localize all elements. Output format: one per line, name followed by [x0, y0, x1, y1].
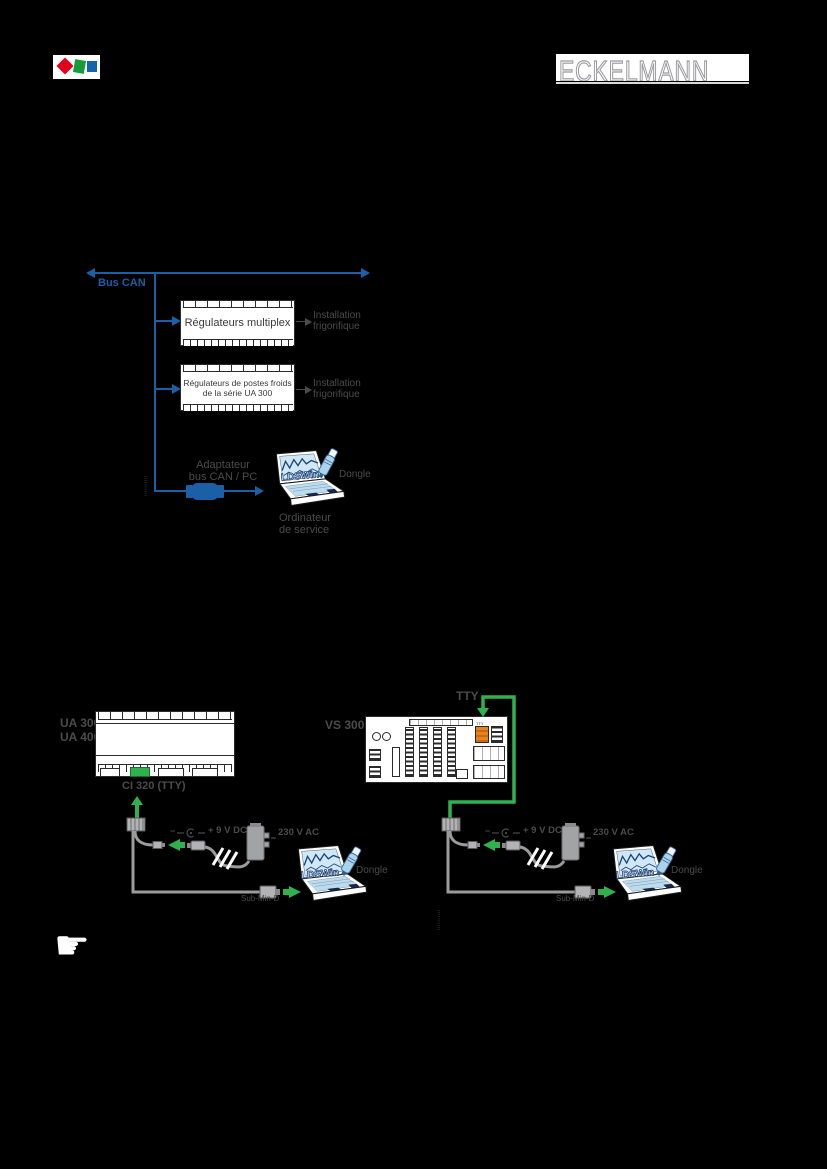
- multiplex-box-label: Régulateurs multiplex: [185, 317, 291, 329]
- target-label: Installation frigorifique: [313, 378, 361, 400]
- can-bus-label: Bus CAN: [98, 277, 146, 289]
- multiplex-controller-box: Régulateurs multiplex: [180, 300, 295, 346]
- logo-green-square-icon: [73, 59, 86, 74]
- connector-block: [419, 727, 428, 777]
- dc-voltage-label: + 9 V DC: [523, 826, 562, 837]
- logo-blue-square-icon: [87, 61, 97, 72]
- target-label: Installation frigorifique: [313, 310, 361, 332]
- subd-label: Sub-Min-D: [556, 895, 594, 904]
- can-adapter-body: [192, 483, 218, 500]
- connector-block: [98, 712, 232, 720]
- ua-box-line2: de la série UA 300: [203, 388, 272, 398]
- note-pointing-hand-icon: ☛: [54, 926, 90, 966]
- connector-block: [158, 768, 184, 777]
- connector-block: [392, 747, 400, 777]
- connector-block: [100, 768, 120, 777]
- dc-voltage-label: + 9 V DC: [208, 826, 247, 837]
- ci320-green-port: [130, 767, 150, 777]
- brand-wordmark: ECKELMANN: [559, 54, 709, 81]
- ac-voltage-label: 230 V AC: [278, 828, 319, 839]
- polarity-minus: −: [485, 826, 490, 836]
- connector-block: [192, 768, 218, 777]
- ua300-controller-box: Régulateurs de postes froids de la série…: [180, 364, 295, 411]
- dongle-label: Dongle: [356, 865, 388, 876]
- tty-wire: [440, 688, 530, 823]
- company-logo: [53, 55, 100, 79]
- figure-id-text: IIIIIIIIII: [144, 440, 148, 496]
- logo-red-diamond-icon: [57, 58, 74, 75]
- target-arrow-icon: [305, 386, 312, 394]
- connector-block: [183, 339, 293, 346]
- can-bus-left-arrow-icon: [86, 268, 95, 278]
- vs300-label: VS 300: [325, 719, 364, 732]
- connector-block: [369, 749, 381, 761]
- connector-block: [369, 766, 381, 778]
- ci320-label: CI 320 (TTY): [122, 780, 186, 792]
- connector-block: [405, 727, 414, 777]
- brand-underline: [556, 82, 749, 84]
- dongle-label: Dongle: [671, 865, 703, 876]
- can-bus-drop-line: [154, 272, 156, 492]
- subd-label: Sub-Min-D: [241, 895, 279, 904]
- device-line: [96, 755, 234, 756]
- board-hole: [372, 732, 381, 741]
- connector-block: [183, 404, 293, 411]
- dongle-label: Dongle: [339, 469, 371, 480]
- ua-device: [95, 711, 235, 777]
- can-bus-line: [92, 272, 364, 274]
- figure-id-text: IIIIIIIIII: [437, 860, 441, 930]
- polarity-minus: −: [170, 826, 175, 836]
- board-hole: [382, 732, 391, 741]
- manual-page: ECKELMANN Bus CAN IIIIIIIIII Régulateurs…: [0, 0, 827, 1169]
- device-line: [96, 723, 234, 724]
- brand-wordmark-box: ECKELMANN: [556, 54, 749, 81]
- can-bus-right-arrow-icon: [361, 268, 370, 278]
- target-arrow-icon: [305, 318, 312, 326]
- ci320-arrow-icon: [131, 796, 143, 805]
- service-computer-label: Ordinateur de service: [279, 512, 331, 537]
- adapter-arrow-icon: [255, 486, 264, 496]
- can-adapter-flange: [217, 485, 224, 498]
- ua-box-line1: Régulateurs de postes froids: [183, 378, 291, 388]
- ac-voltage-label: 230 V AC: [593, 828, 634, 839]
